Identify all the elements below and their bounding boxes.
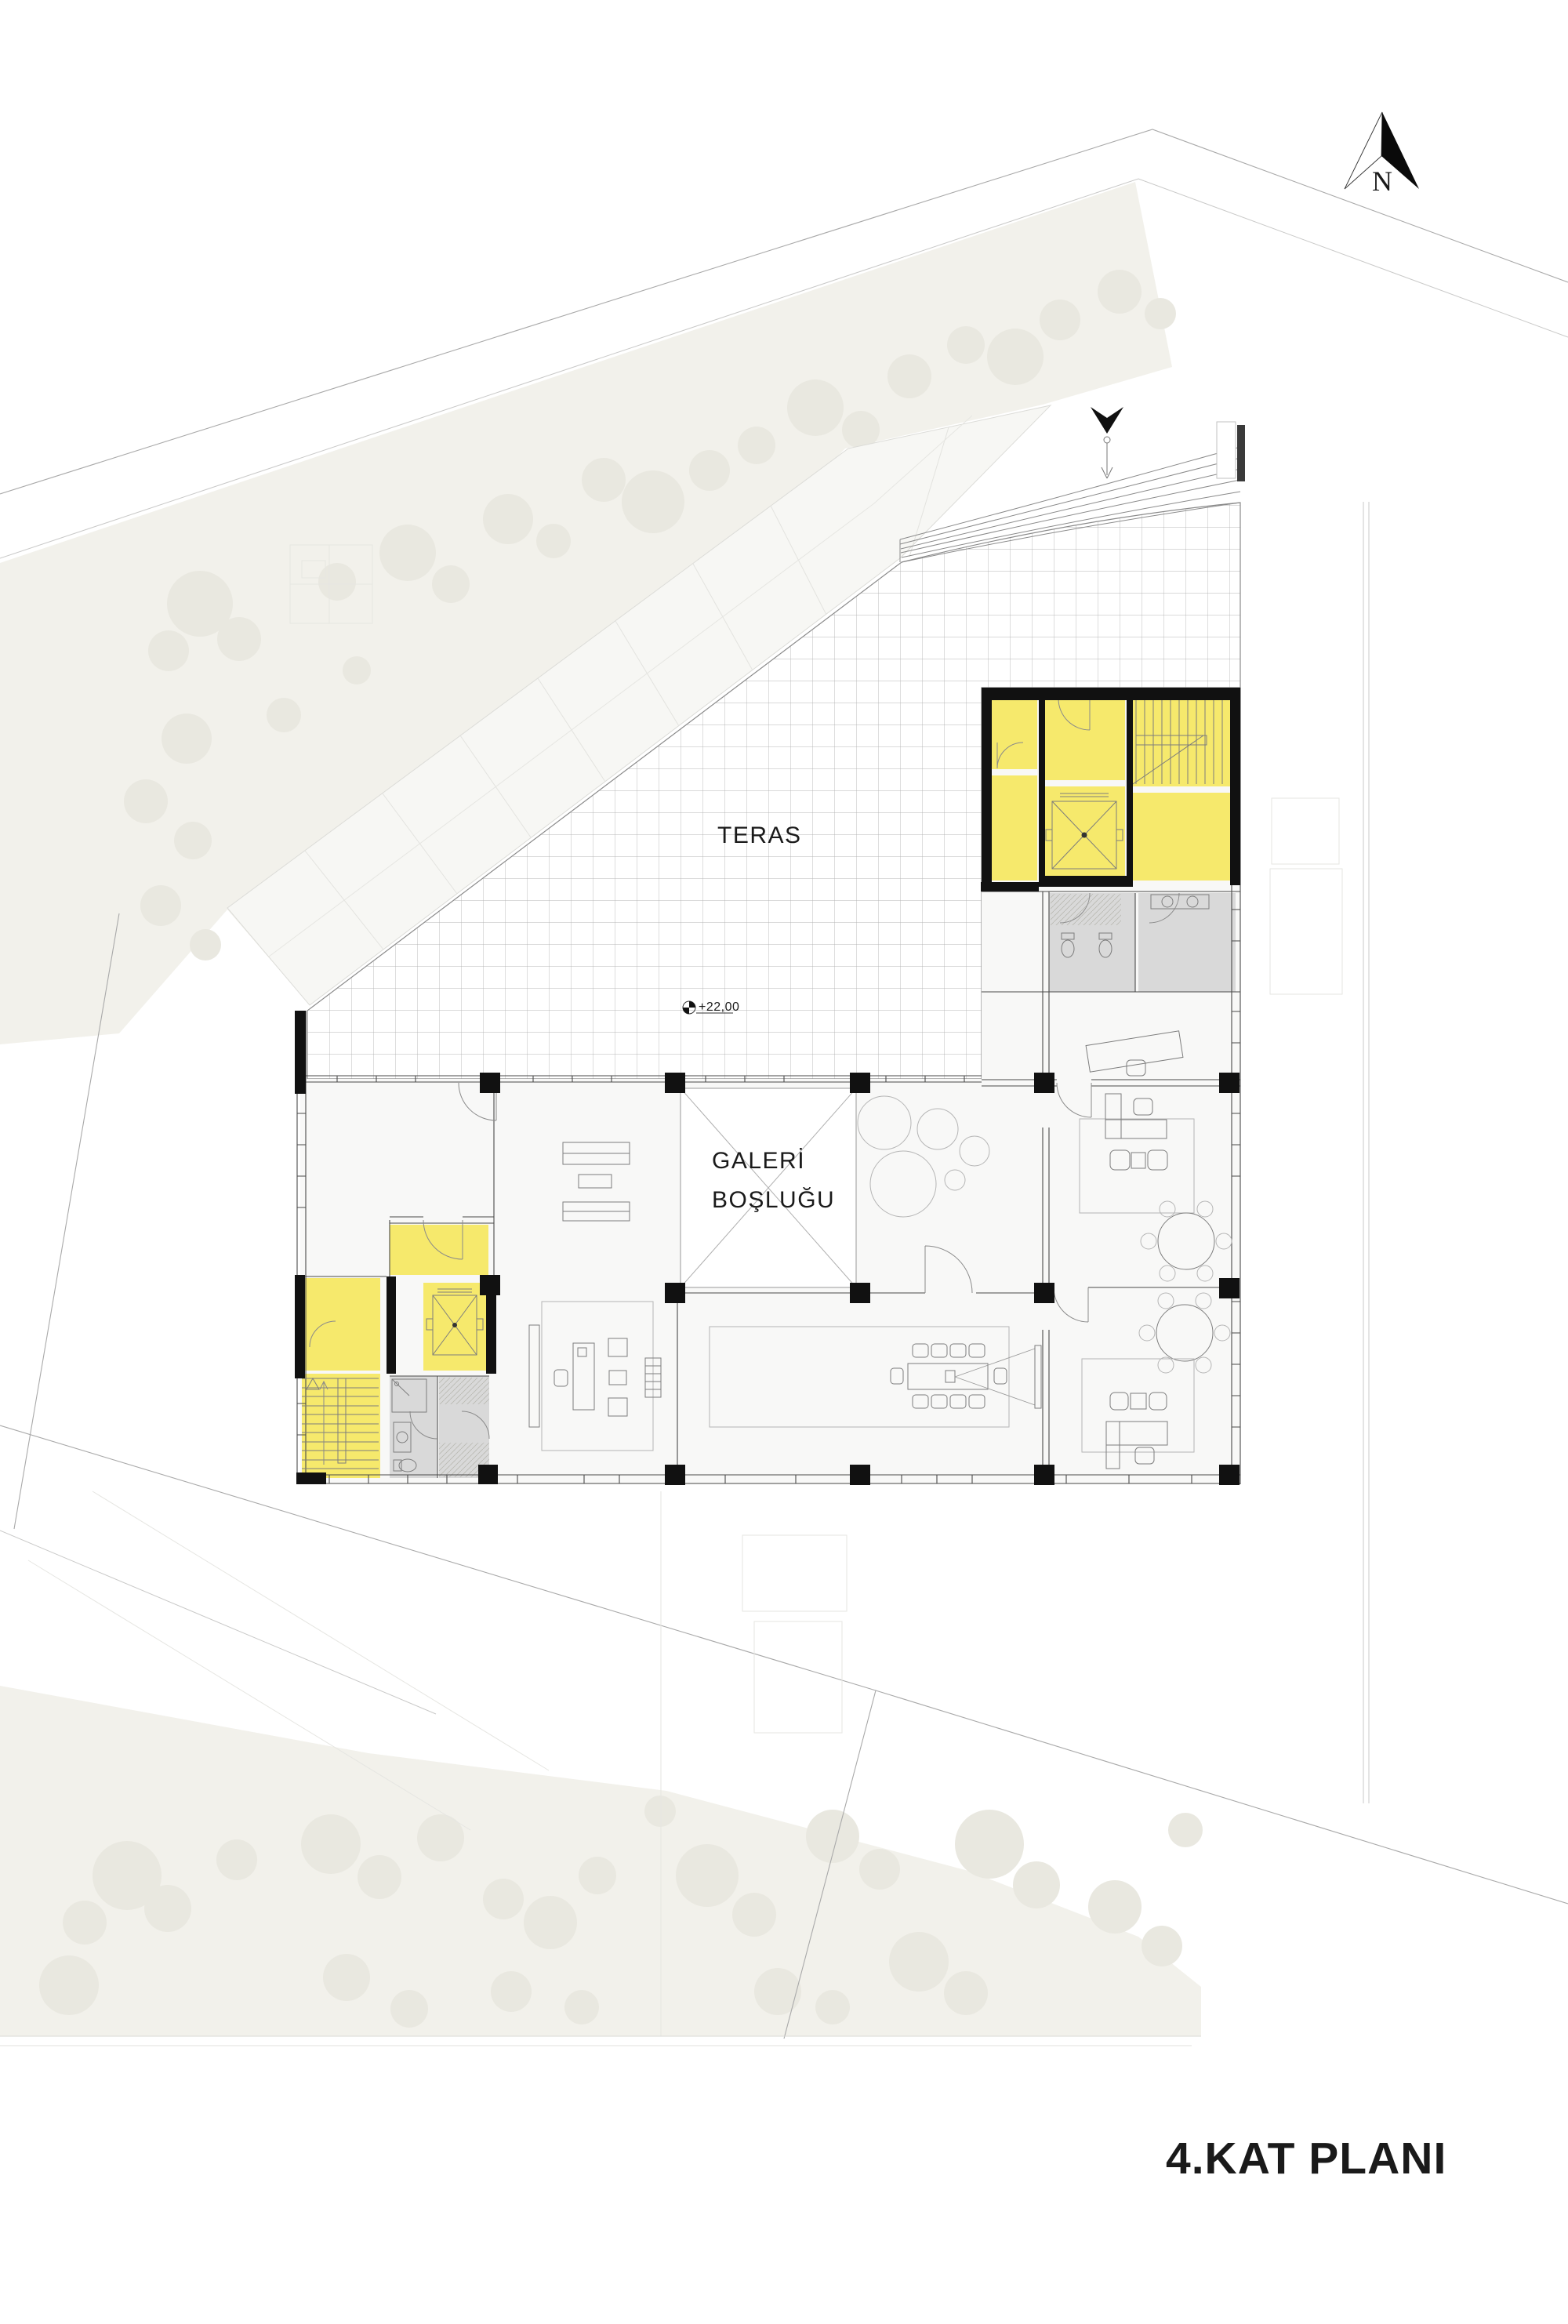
core1-room [985, 775, 1037, 881]
floor-plan-canvas: +22,00 TERAS GALERİ BOŞLUĞU N 4.KAT PLAN… [0, 0, 1568, 2324]
wc-hatch [1051, 894, 1121, 925]
north-label: N [1372, 165, 1392, 197]
core1-lobby [1044, 699, 1125, 780]
wc-room [390, 1376, 437, 1478]
plan-title: 4.KAT PLANI [1166, 2133, 1446, 2184]
entry-direction-marker [1091, 407, 1123, 478]
wc-room [1138, 893, 1236, 992]
core2-anteroom [390, 1225, 488, 1275]
terrace-label: TERAS [717, 822, 802, 848]
wc-hatch [439, 1378, 489, 1404]
core1-room [985, 699, 1037, 769]
parapet-block [1217, 422, 1236, 478]
core1-stair [1133, 699, 1230, 786]
level-marker-label: +22,00 [699, 1000, 739, 1014]
gallery-void-label-line1: GALERİ [712, 1148, 805, 1174]
chevron-icon [1091, 407, 1123, 434]
core1-service-shaft [1133, 793, 1230, 881]
gallery-void-label-line2: BOŞLUĞU [712, 1187, 835, 1213]
canopy-end-cap [1237, 425, 1245, 481]
core2-lobby [304, 1278, 380, 1371]
north-arrow: N [1345, 112, 1419, 197]
